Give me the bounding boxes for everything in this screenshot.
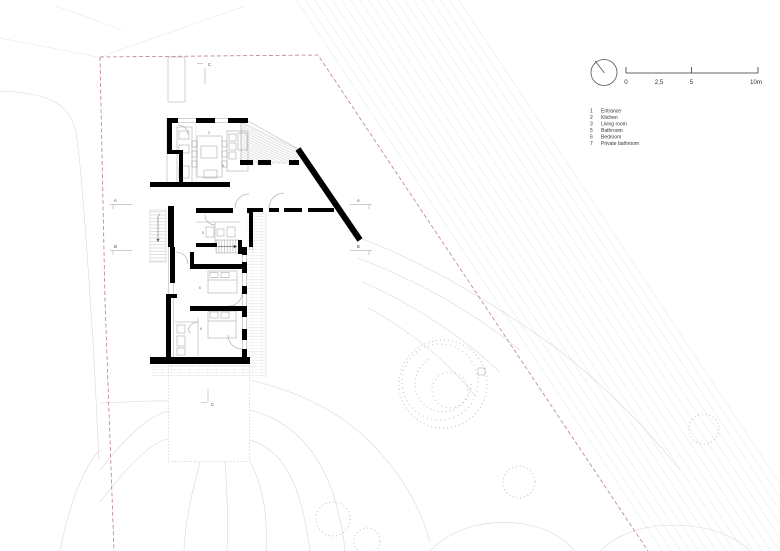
legend-num-5: 5 <box>590 128 593 134</box>
legend-num-6: 6 <box>590 135 593 141</box>
room-number-bedroom2: 6 <box>200 327 202 331</box>
entry-pad <box>168 57 185 102</box>
scale-label-0: 0 <box>624 79 628 86</box>
legend-label-living-room: Living room <box>601 122 627 128</box>
contour-line <box>250 462 266 551</box>
tree-small-2 <box>354 528 380 551</box>
section-marker-b-left: B <box>110 244 132 255</box>
room-number-kitchen: 2 <box>208 131 210 135</box>
contour-line <box>362 282 500 372</box>
walls-corridor <box>253 208 334 212</box>
legend-num-3: 3 <box>590 122 593 128</box>
room-number-bedroom1: 6 <box>199 286 201 290</box>
contour-line <box>56 6 122 30</box>
contour-line <box>60 450 100 551</box>
section-marker-b-right: B <box>350 244 372 255</box>
bed-double <box>208 311 236 338</box>
tree-large <box>399 340 487 428</box>
door-arc <box>229 293 242 306</box>
contour-line <box>0 38 98 57</box>
contour-line <box>0 91 99 460</box>
contour-line <box>250 410 345 551</box>
section-marker-a-left: A <box>110 198 132 209</box>
path-line <box>100 401 168 403</box>
room-number-entrance: 1 <box>158 213 160 217</box>
floor-plan-canvas: A B A B C C 1 2 3 5 6 6 7 <box>0 0 780 551</box>
roof-hatch <box>241 122 300 163</box>
north-arrow <box>591 60 617 86</box>
section-letter-c: C <box>211 402 214 407</box>
contour-line <box>184 462 200 551</box>
section-letter-a: A <box>357 198 360 203</box>
deck-edge-band <box>152 365 248 377</box>
scale-label-5: 5 <box>690 79 694 86</box>
door-arc <box>228 335 242 349</box>
legend: 1 Entrance 2 Kitchen 3 Living room 5 Bat… <box>590 109 639 148</box>
section-letter-b: B <box>114 244 117 249</box>
interior-stairs <box>216 240 239 253</box>
section-marker-c-deck: C <box>201 389 214 407</box>
legend-num-1: 1 <box>590 109 593 115</box>
legend-label-bathroom: Bathroom <box>601 128 623 134</box>
legend-num-2: 2 <box>590 115 593 121</box>
slope-hatch-band <box>292 0 780 551</box>
room-number-bathroom: 5 <box>202 231 204 235</box>
diagonal-wall <box>298 149 360 240</box>
door-arc <box>235 194 249 208</box>
door-arc <box>205 215 215 225</box>
door-arc <box>176 252 188 264</box>
legend-label-entrance: Entrance <box>601 109 621 115</box>
legend-label-kitchen: Kitchen <box>601 115 618 121</box>
deck-outline <box>169 366 250 462</box>
contour-line <box>100 6 245 57</box>
contour-line <box>250 380 430 542</box>
section-letter-c: C <box>208 62 211 67</box>
bed-single <box>208 271 237 293</box>
contour-line <box>430 522 575 551</box>
scale-label-2-5: 2,5 <box>655 79 664 86</box>
door-arc <box>178 125 188 135</box>
exterior-stairs <box>150 210 166 262</box>
north-arrow-needle <box>595 61 605 73</box>
room-number-private-bathroom: 7 <box>189 331 191 335</box>
section-marker-c-top: C <box>197 62 211 84</box>
private-bath-fixtures <box>177 325 185 355</box>
legend-label-private-bathroom: Private bathroom <box>601 141 639 147</box>
boundary-line-west <box>100 57 114 551</box>
tree-small-3 <box>503 466 535 498</box>
walls-middle-block <box>168 206 253 254</box>
section-letter-a: A <box>114 198 117 203</box>
kitchen-island <box>192 136 227 177</box>
section-letter-b: B <box>357 244 360 249</box>
legend-num-7: 7 <box>590 141 593 147</box>
door-arc <box>269 193 284 208</box>
walls-bedroom-wing <box>150 247 250 364</box>
contour-line <box>225 462 228 551</box>
scale-bar: 0 2,5 5 10m <box>624 67 762 86</box>
contour-line <box>250 440 310 551</box>
site-plan-svg: A B A B C C 1 2 3 5 6 6 7 <box>0 0 780 551</box>
bathroom-fixtures <box>206 227 235 237</box>
contour-line <box>368 308 475 395</box>
section-marker-a-right: A <box>350 198 372 209</box>
room-number-living: 3 <box>222 164 224 168</box>
legend-label-bedroom: Bedroom <box>601 135 621 141</box>
scale-label-10m: 10m <box>750 79 762 86</box>
tree-small-1 <box>316 502 350 536</box>
